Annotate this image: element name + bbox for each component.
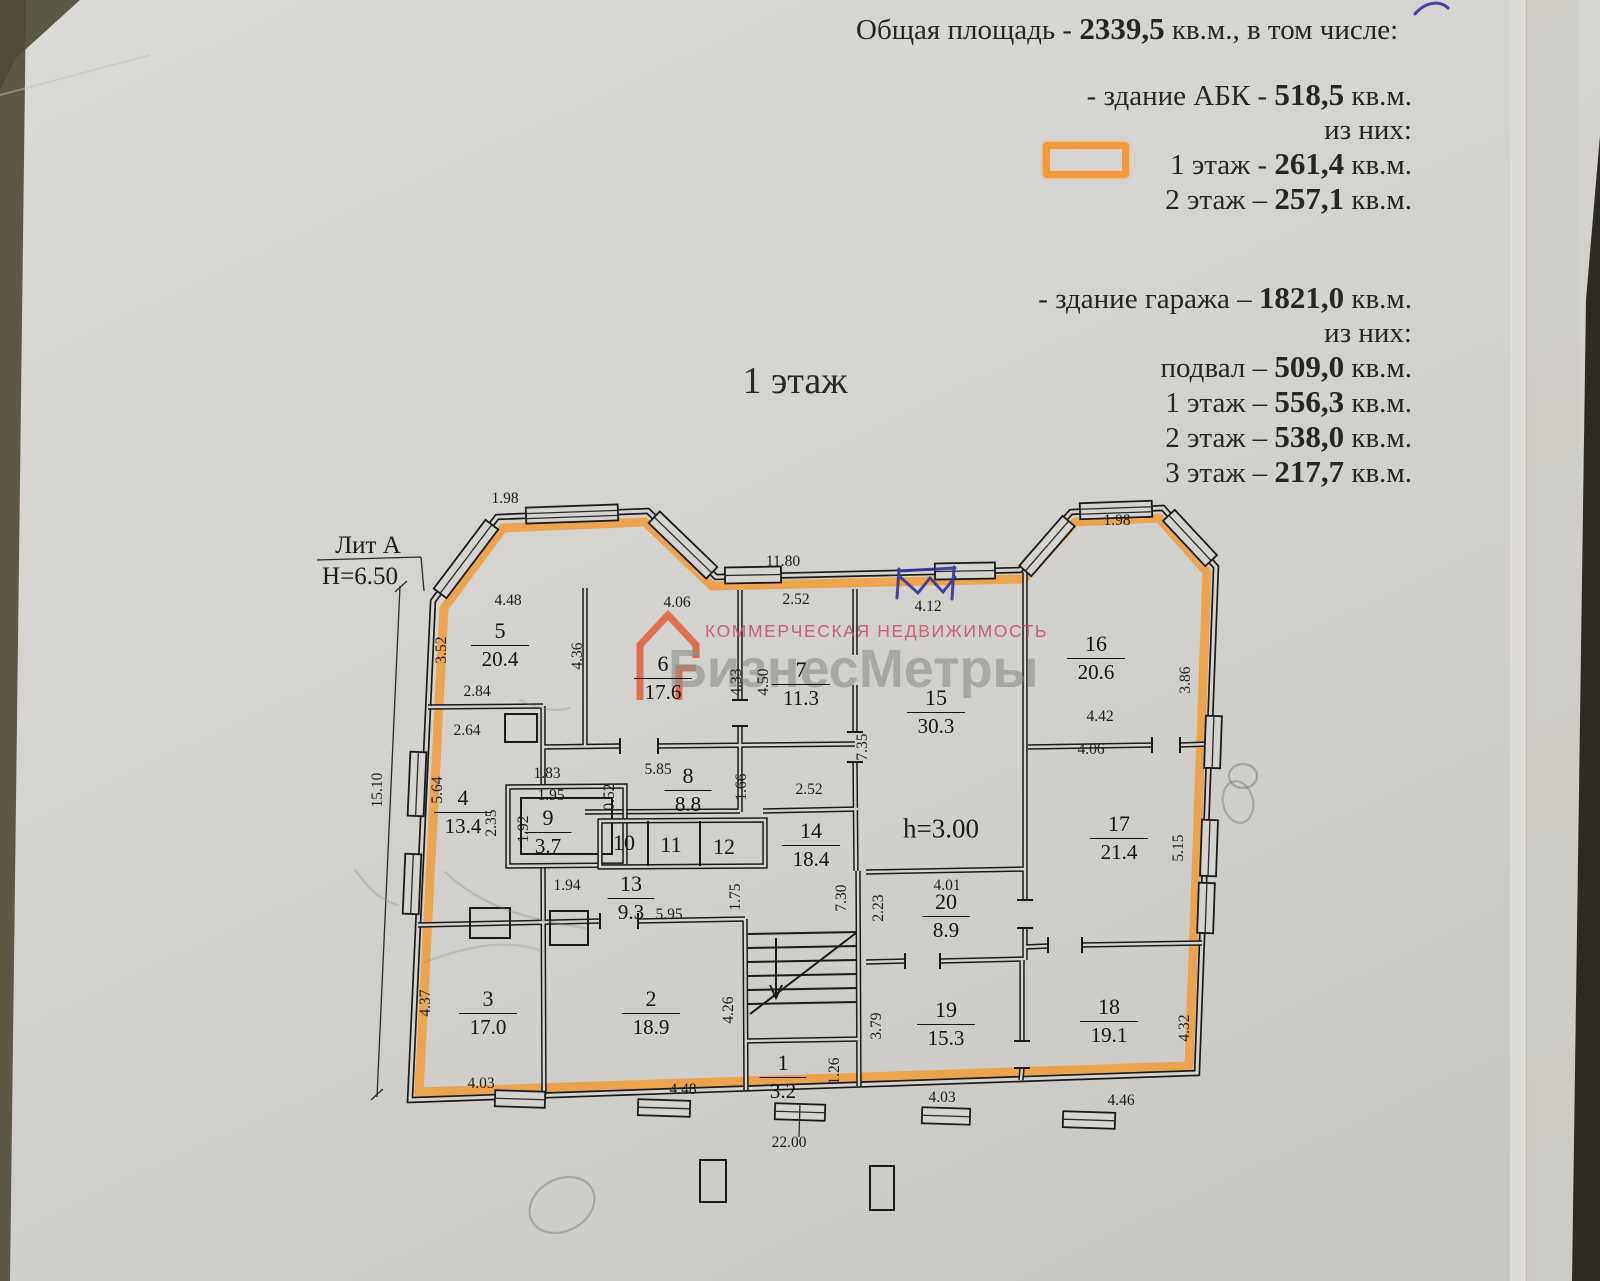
room-number: 3: [459, 988, 517, 1010]
fraction-line: [459, 1013, 517, 1014]
room-number: 6: [634, 653, 692, 675]
dimension-label: 4.36: [569, 642, 587, 669]
dimension-label: 3.52: [433, 636, 451, 663]
dimension-label: 1.66: [733, 773, 751, 800]
room-number: 14: [782, 820, 840, 842]
room-label-19: 1915.3: [917, 999, 975, 1049]
dimension-label: 22.00: [772, 1134, 807, 1152]
room-area: 19.1: [1080, 1025, 1138, 1046]
room-number: 18: [1080, 996, 1138, 1018]
room-area: 9.3: [608, 902, 655, 923]
dimension-label: 4.06: [1077, 741, 1104, 759]
fraction-line: [608, 898, 655, 899]
room-label-17: 1721.4: [1090, 813, 1148, 863]
fraction-line: [1080, 1021, 1138, 1022]
room-number: 10: [613, 832, 635, 854]
fraction-line: [907, 712, 965, 713]
room-label-10: 10: [613, 832, 635, 854]
dimension-label: 5.64: [429, 776, 447, 803]
room-area: 18.9: [622, 1017, 680, 1038]
plan-labels-layer: 520.4617.6711.31530.31620.6413.493.788.8…: [0, 0, 1600, 1281]
room-number: 16: [1067, 633, 1125, 655]
room-number: 19: [917, 999, 975, 1021]
fraction-line: [760, 1077, 807, 1078]
room-area: 17.0: [459, 1017, 517, 1038]
fraction-line: [471, 645, 529, 646]
dimension-label: 0.52: [601, 783, 619, 810]
room-label-2: 218.9: [622, 988, 680, 1038]
dimension-label: 4.50: [755, 668, 773, 695]
dimension-label: 3.86: [1177, 666, 1195, 693]
room-number: 13: [608, 873, 655, 895]
dimension-label: 1.98: [1103, 512, 1130, 530]
fraction-line: [1067, 658, 1125, 659]
room-area: 8.9: [923, 920, 970, 941]
dimension-label: 2.64: [453, 722, 480, 740]
dimension-label: 2.35: [483, 809, 501, 836]
dimension-label: 1.95: [537, 787, 564, 805]
dimension-label: 2.52: [782, 591, 809, 609]
dimension-label: 1.83: [533, 765, 560, 783]
dimension-label: 4.48: [669, 1081, 696, 1099]
dimension-label: 7.35: [854, 733, 872, 760]
dimension-label: 4.48: [494, 592, 521, 610]
room-area: 15.3: [917, 1028, 975, 1049]
dimension-label: 4.46: [1107, 1092, 1134, 1110]
room-area: 11.3: [772, 688, 830, 709]
dimension-label: 5.95: [655, 906, 682, 924]
room-label-15: 1530.3: [907, 687, 965, 737]
room-label-3: 317.0: [459, 988, 517, 1038]
dimension-label: 1.94: [553, 877, 580, 895]
dimension-label: 4.03: [928, 1089, 955, 1107]
dimension-label: 4.01: [933, 877, 960, 895]
room-label-1: 13.2: [760, 1052, 807, 1102]
room-number: 5: [471, 620, 529, 642]
dimension-label: 2.23: [870, 894, 888, 921]
dimension-label: 11.80: [766, 553, 800, 571]
room-number: 15: [907, 687, 965, 709]
room-number: 7: [772, 659, 830, 681]
dimension-label: 2.52: [795, 781, 822, 799]
dimension-label: 4.37: [417, 989, 435, 1016]
dimension-label: 4.06: [663, 594, 690, 612]
room-label-18: 1819.1: [1080, 996, 1138, 1046]
room-number: 1: [760, 1052, 807, 1074]
dimension-label: 3.79: [868, 1012, 886, 1039]
dimension-label: 1.75: [727, 883, 745, 910]
room-area: 18.4: [782, 849, 840, 870]
dimension-label: 1.98: [491, 490, 518, 508]
room-label-5: 520.4: [471, 620, 529, 670]
fraction-line: [622, 1013, 680, 1014]
dimension-label: 1.92: [515, 815, 533, 842]
room-area: 17.6: [634, 682, 692, 703]
room-area: 21.4: [1090, 842, 1148, 863]
fraction-line: [917, 1024, 975, 1025]
dimension-label: 4.26: [720, 996, 738, 1023]
dimension-label: 1.26: [826, 1057, 844, 1084]
dimension-label: 4.12: [914, 598, 941, 616]
dimension-label: 7.30: [833, 884, 851, 911]
room-label-11: 11: [660, 834, 681, 856]
dimension-label: 4.33: [728, 668, 746, 695]
fraction-line: [634, 678, 692, 679]
room-label-7: 711.3: [772, 659, 830, 709]
dimension-label: 4.03: [467, 1075, 494, 1093]
room-number: 11: [660, 834, 681, 856]
dimension-label: 15.10: [369, 773, 387, 808]
room-number: 17: [1090, 813, 1148, 835]
dimension-label: 4.42: [1086, 708, 1113, 726]
dimension-label: 5.85: [644, 761, 671, 779]
room-area: 3.2: [760, 1081, 807, 1102]
room-area: 20.4: [471, 649, 529, 670]
room-area: 30.3: [907, 716, 965, 737]
fraction-line: [782, 845, 840, 846]
fraction-line: [923, 916, 970, 917]
room-label-13: 139.3: [608, 873, 655, 923]
fraction-line: [665, 790, 712, 791]
room-number: 12: [713, 836, 735, 858]
room-label-20: 208.9: [923, 891, 970, 941]
room-label-6: 617.6: [634, 653, 692, 703]
fraction-line: [1090, 838, 1148, 839]
dimension-label: 2.84: [463, 683, 490, 701]
dimension-label: 4.32: [1176, 1014, 1194, 1041]
room-area: 20.6: [1067, 662, 1125, 683]
scanned-floor-plan-page: КОММЕРЧЕСКАЯ НЕДВИЖИМОСТЬ БизнесМетры Об…: [0, 0, 1600, 1281]
room-label-12: 12: [713, 836, 735, 858]
room-label-16: 1620.6: [1067, 633, 1125, 683]
room-label-14: 1418.4: [782, 820, 840, 870]
dimension-label: 5.15: [1170, 834, 1188, 861]
room-number: 2: [622, 988, 680, 1010]
room-area: 8.8: [665, 794, 712, 815]
fraction-line: [772, 684, 830, 685]
